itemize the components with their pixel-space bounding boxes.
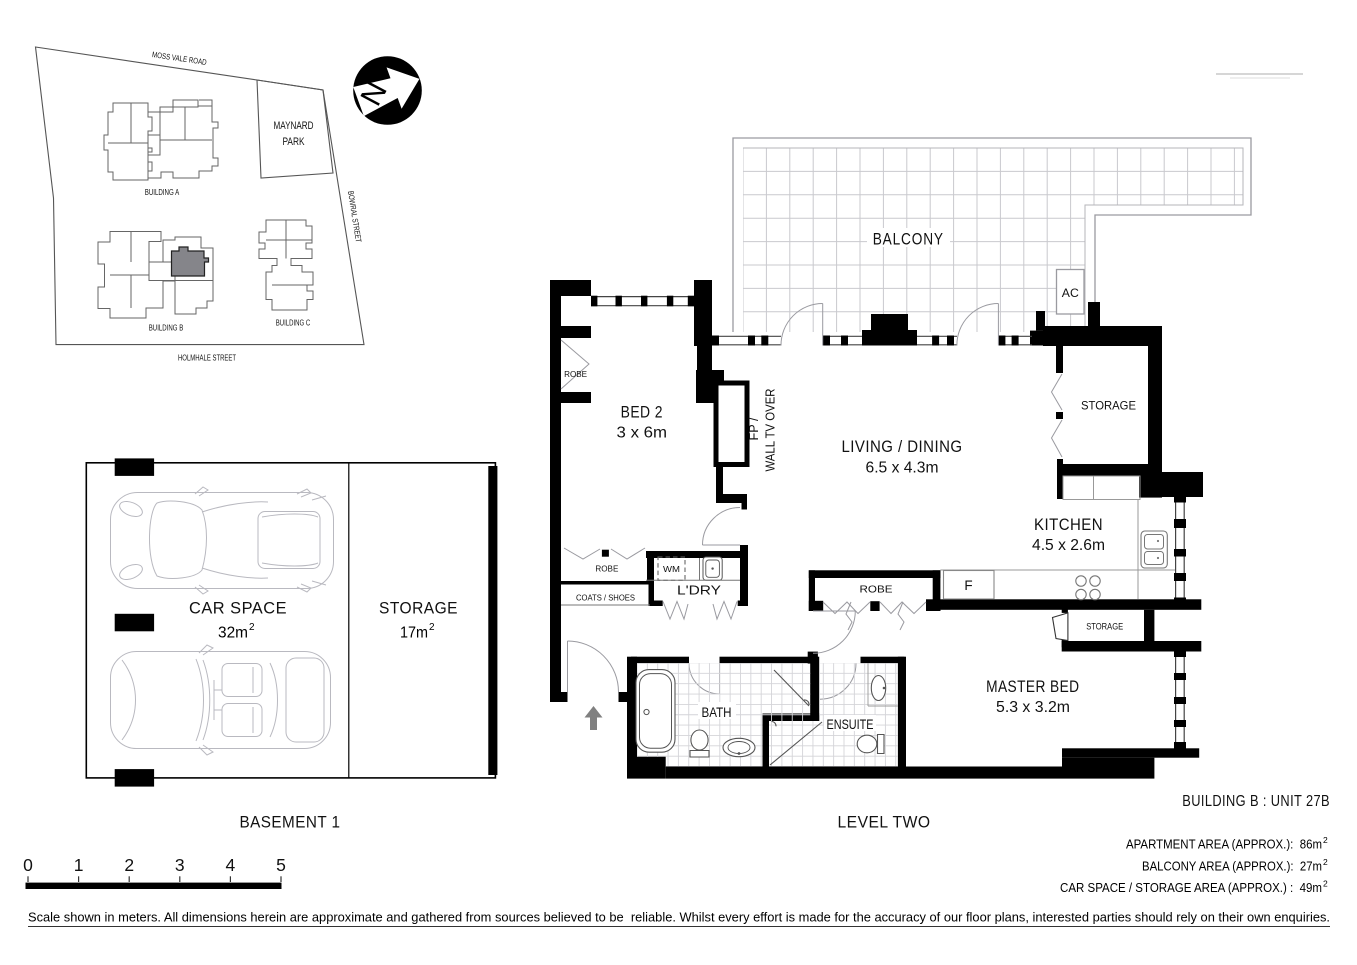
svg-text:ROBE: ROBE: [564, 370, 587, 379]
svg-text:MAYNARD: MAYNARD: [274, 120, 314, 132]
svg-text:COATS / SHOES: COATS / SHOES: [576, 592, 635, 602]
svg-text:AC: AC: [1062, 288, 1079, 300]
svg-text:17m: 17m: [400, 625, 428, 642]
svg-text:APARTMENT AREA (APPROX.): 86m: APARTMENT AREA (APPROX.): 86m: [1126, 837, 1322, 852]
svg-text:PARK: PARK: [283, 136, 305, 148]
svg-text:6.5 x 4.3m: 6.5 x 4.3m: [866, 460, 939, 477]
svg-text:KITCHEN: KITCHEN: [1034, 516, 1103, 534]
svg-text:F: F: [964, 578, 972, 593]
svg-text:STORAGE: STORAGE: [379, 600, 458, 618]
svg-text:1: 1: [74, 855, 84, 875]
svg-text:Scale shown in meters. All dim: Scale shown in meters. All dimensions he…: [28, 910, 1330, 925]
svg-text:4.5 x 2.6m: 4.5 x 2.6m: [1032, 537, 1105, 554]
svg-text:5: 5: [276, 855, 286, 875]
svg-text:5.3 x 3.2m: 5.3 x 3.2m: [996, 699, 1070, 716]
svg-text:ROBE: ROBE: [860, 584, 893, 596]
svg-text:ENSUITE: ENSUITE: [827, 717, 874, 732]
svg-text:ROBE: ROBE: [595, 565, 618, 574]
svg-text:LIVING / DINING: LIVING / DINING: [842, 438, 963, 456]
svg-text:MASTER BED: MASTER BED: [986, 678, 1079, 696]
svg-text:HOLMHALE STREET: HOLMHALE STREET: [178, 354, 236, 363]
svg-text:CAR SPACE / STORAGE AREA (APPR: CAR SPACE / STORAGE AREA (APPROX.) : 49m: [1060, 880, 1322, 895]
svg-text:BUILDING B : UNIT 27B: BUILDING B : UNIT 27B: [1182, 793, 1330, 810]
svg-text:3 x 6m: 3 x 6m: [617, 425, 668, 442]
svg-text:BUILDING C: BUILDING C: [276, 319, 311, 328]
svg-text:32m: 32m: [218, 625, 248, 642]
svg-text:BALCONY: BALCONY: [873, 231, 944, 249]
svg-text:STORAGE: STORAGE: [1086, 622, 1123, 632]
svg-text:BATH: BATH: [702, 705, 732, 720]
svg-text:BASEMENT 1: BASEMENT 1: [240, 813, 341, 832]
svg-text:2: 2: [1323, 857, 1328, 867]
svg-text:L'DRY: L'DRY: [677, 583, 721, 598]
svg-text:4: 4: [226, 855, 236, 875]
svg-text:BED 2: BED 2: [621, 404, 663, 422]
svg-text:LEVEL TWO: LEVEL TWO: [838, 813, 931, 832]
svg-text:0: 0: [23, 855, 33, 875]
svg-text:BUILDING B: BUILDING B: [149, 324, 184, 333]
svg-text:FP /: FP /: [747, 417, 761, 441]
svg-text:WALL TV OVER: WALL TV OVER: [764, 389, 778, 472]
svg-text:WM: WM: [663, 564, 680, 574]
svg-text:2: 2: [124, 855, 134, 875]
svg-text:STORAGE: STORAGE: [1081, 399, 1136, 413]
svg-text:CAR SPACE: CAR SPACE: [189, 600, 287, 618]
svg-text:BALCONY AREA (APPROX.): 27m: BALCONY AREA (APPROX.): 27m: [1142, 859, 1322, 874]
svg-text:3: 3: [175, 855, 185, 875]
svg-text:2: 2: [249, 622, 255, 633]
svg-text:2: 2: [429, 622, 435, 633]
svg-text:BUILDING A: BUILDING A: [145, 188, 180, 197]
svg-text:2: 2: [1323, 879, 1328, 889]
svg-text:2: 2: [1323, 835, 1328, 845]
